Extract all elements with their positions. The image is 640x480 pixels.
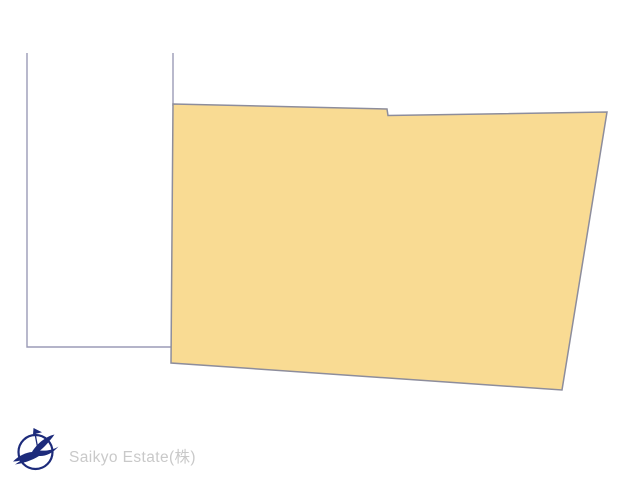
plot-diagram-canvas: Saikyo Estate(株) — [0, 0, 640, 480]
main-parcel — [171, 104, 607, 390]
saikyo-estate-logo-icon — [12, 424, 60, 474]
logo-flag — [33, 428, 42, 435]
brand-footer: Saikyo Estate(株) — [12, 424, 196, 474]
adjacent-parcel-outline — [27, 53, 172, 347]
plot-diagram — [0, 0, 640, 480]
brand-wordmark: Saikyo Estate(株) — [69, 445, 196, 467]
